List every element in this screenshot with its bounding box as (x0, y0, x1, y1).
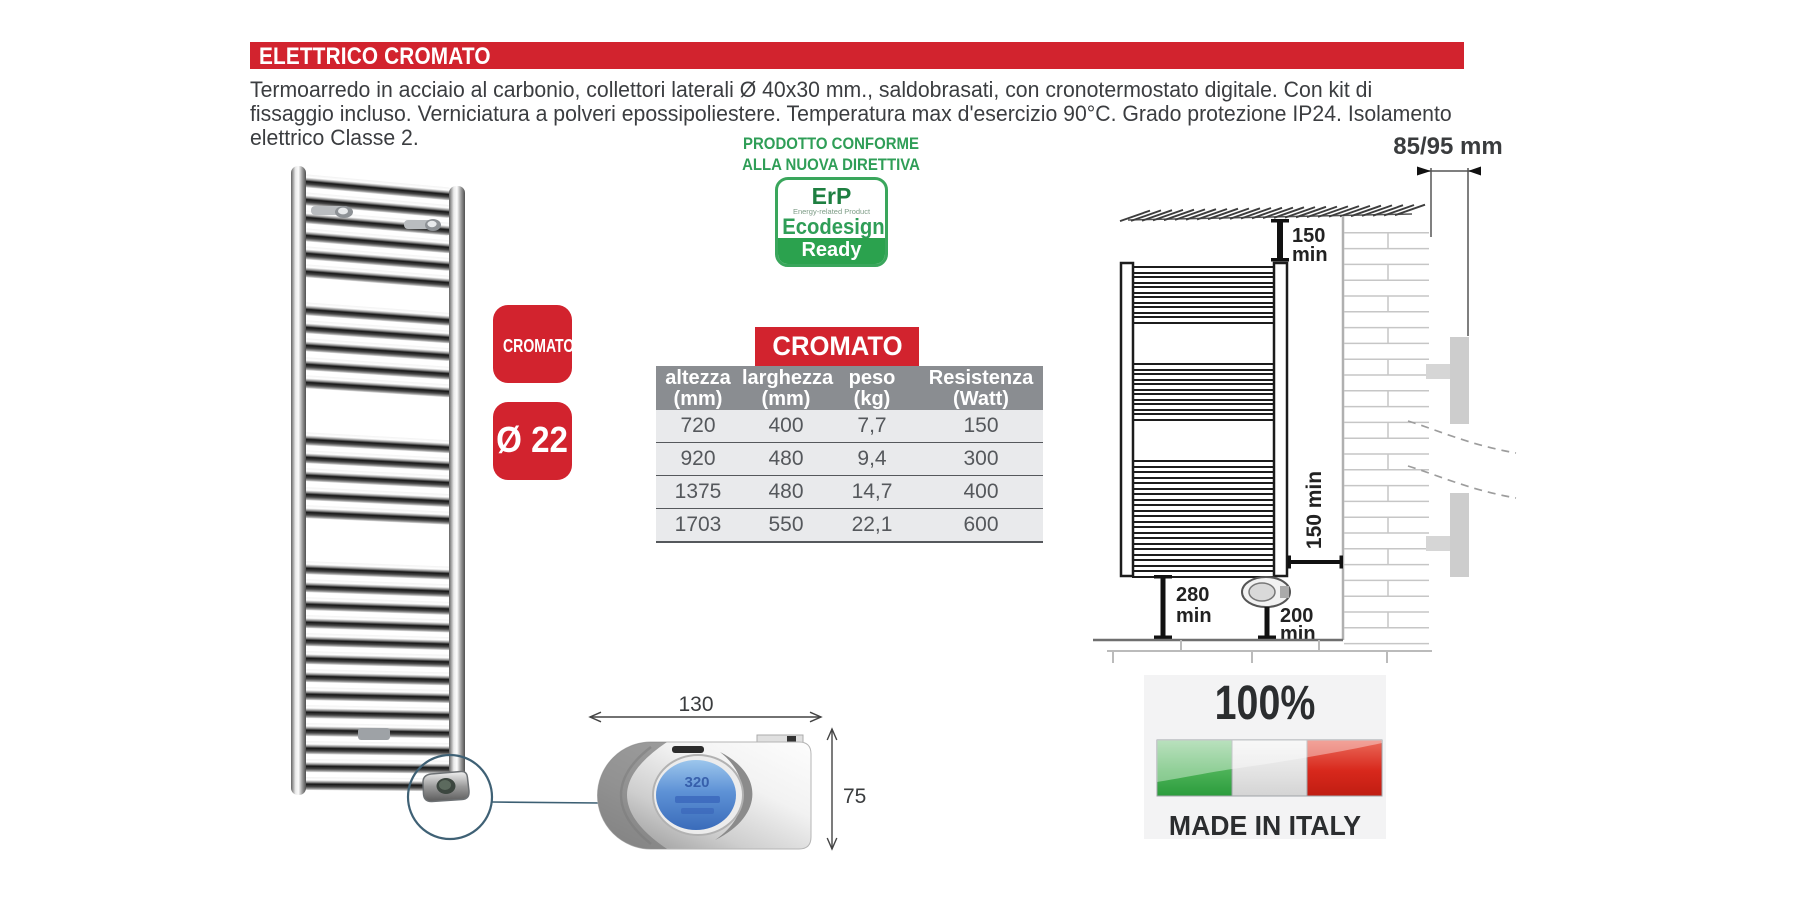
svg-text:320: 320 (684, 774, 709, 791)
svg-text:150 min: 150 min (1303, 471, 1326, 549)
svg-text:75: 75 (843, 785, 866, 808)
svg-text:85/95 mm: 85/95 mm (1393, 133, 1502, 160)
svg-text:min: min (1292, 244, 1328, 266)
svg-text:130: 130 (678, 693, 713, 716)
svg-text:min: min (1176, 605, 1212, 627)
svg-text:min: min (1280, 623, 1316, 645)
svg-text:280: 280 (1176, 584, 1209, 606)
